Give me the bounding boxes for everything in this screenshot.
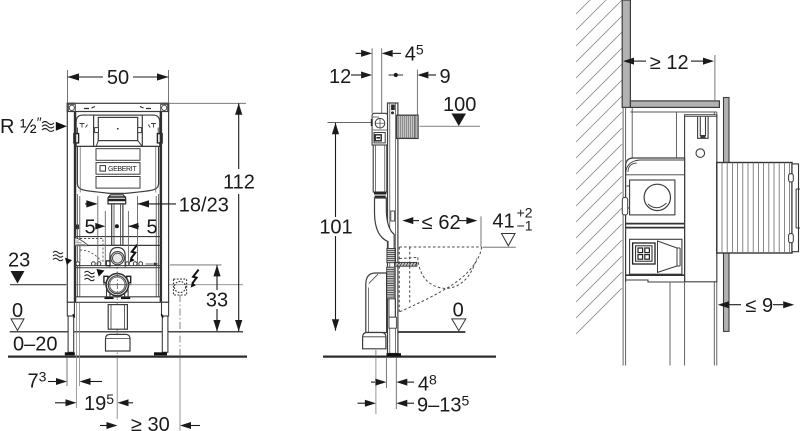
svg-text:50: 50 bbox=[107, 67, 129, 89]
svg-text:112: 112 bbox=[223, 172, 255, 194]
svg-text:GEBERIT: GEBERIT bbox=[108, 166, 137, 173]
svg-text:0–20: 0–20 bbox=[13, 334, 58, 356]
svg-text:5: 5 bbox=[146, 217, 157, 239]
svg-text:41: 41 bbox=[492, 211, 514, 233]
svg-text:5: 5 bbox=[84, 217, 95, 239]
svg-text:−1: −1 bbox=[517, 218, 533, 234]
svg-text:0: 0 bbox=[453, 300, 464, 322]
svg-text:9: 9 bbox=[440, 66, 451, 88]
svg-text:33: 33 bbox=[206, 290, 228, 312]
svg-text:101: 101 bbox=[319, 217, 352, 239]
svg-text:≥ 12: ≥ 12 bbox=[650, 52, 689, 74]
svg-text:≤ 9: ≤ 9 bbox=[746, 295, 774, 317]
svg-text:23: 23 bbox=[8, 250, 30, 272]
svg-text:≥ 30: ≥ 30 bbox=[131, 414, 170, 431]
svg-text:12: 12 bbox=[329, 66, 351, 88]
svg-text:≤ 62: ≤ 62 bbox=[422, 212, 461, 234]
svg-text:18/23: 18/23 bbox=[179, 194, 229, 216]
svg-text:100: 100 bbox=[443, 94, 476, 116]
svg-text:R ½″: R ½″ bbox=[0, 114, 42, 138]
